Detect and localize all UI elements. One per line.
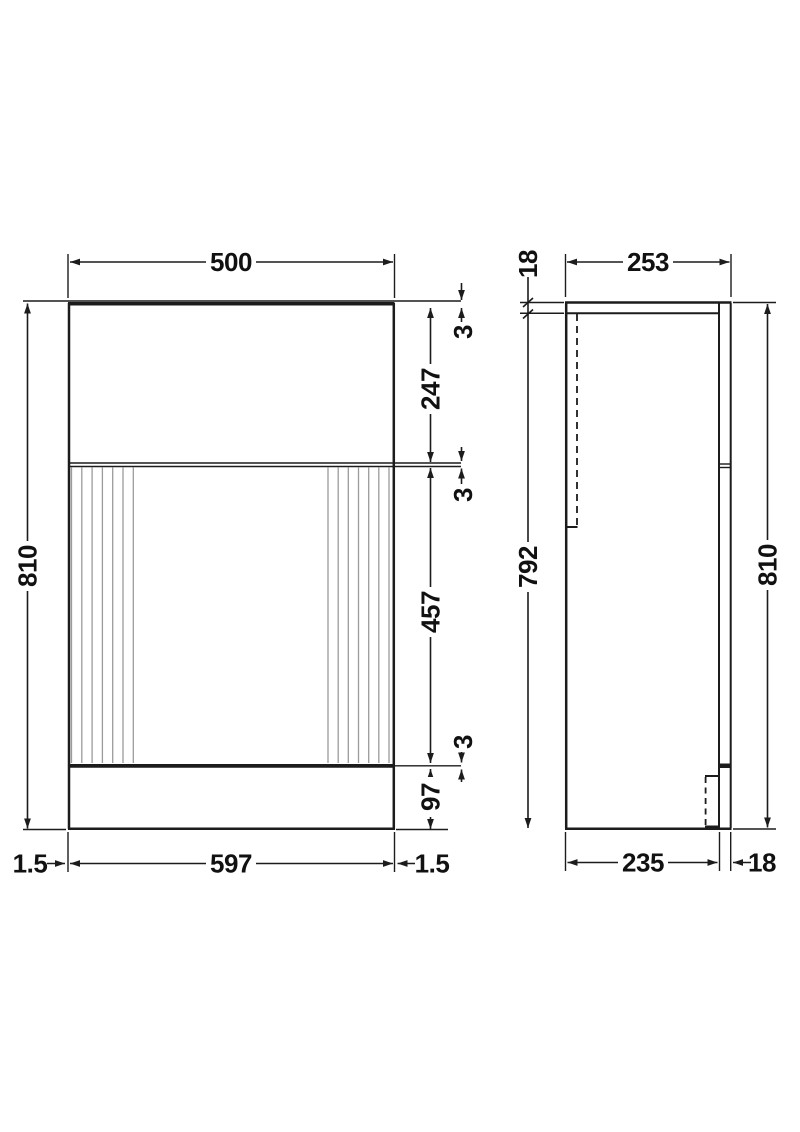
front-view: 500 810 3 247	[13, 247, 479, 879]
dim-side-carcass-height: 792	[513, 277, 543, 828]
front-flutes-left	[72, 468, 134, 764]
dim-side-height: 810	[733, 303, 783, 830]
dim-label-top-trim: 3	[448, 325, 478, 339]
dim-side-depth-bottom: 235	[566, 832, 731, 878]
dim-label-width-bottom: 597	[210, 849, 252, 879]
dim-label-carcass-height: 792	[513, 546, 543, 588]
dim-label-front-thickness: 18	[748, 848, 776, 878]
dim-front-gap-lower: 3	[448, 735, 478, 782]
dim-side-top-thickness: 18	[513, 250, 564, 318]
side-hidden-leg	[705, 776, 719, 827]
dim-label-depth-bottom: 235	[622, 848, 664, 878]
dim-label-doors: 457	[416, 591, 446, 633]
dim-side-depth-top: 253	[566, 247, 732, 297]
front-top-trim-band	[68, 302, 395, 306]
dim-front-top-trim: 3	[448, 283, 478, 339]
side-front-gap-band	[719, 764, 732, 769]
dim-label-gap-lower: 3	[448, 735, 478, 749]
dim-label-gap-upper: 3	[448, 488, 478, 502]
side-view: 253 18 792 810	[513, 247, 783, 878]
front-gap-lower-band	[68, 764, 395, 768]
side-cabinet-outline	[565, 303, 732, 829]
dim-front-upper-panel: 247	[416, 308, 446, 462]
dim-front-width-bottom: 1.5 597 1.5	[13, 832, 450, 879]
dim-label-height: 810	[13, 545, 43, 587]
dim-front-gap-upper: 3	[448, 447, 478, 502]
dim-label-depth-top: 253	[627, 247, 669, 277]
dim-label-plinth: 97	[416, 783, 446, 811]
front-flutes-right	[328, 468, 389, 764]
dim-front-width-top: 500	[68, 247, 395, 298]
dim-label-upper-panel: 247	[416, 368, 446, 410]
dim-label-top-thickness: 18	[513, 250, 543, 278]
dim-front-plinth: 97	[416, 769, 446, 829]
dim-front-height: 810	[13, 304, 43, 829]
dim-label-width-top: 500	[210, 247, 252, 277]
technical-drawing: 500 810 3 247	[0, 0, 800, 1132]
front-cabinet-outline	[23, 301, 461, 830]
dim-label-side-height: 810	[753, 544, 783, 586]
dim-label-edge-right: 1.5	[415, 849, 450, 879]
side-hidden-back-panel	[566, 314, 578, 527]
dim-label-edge-left: 1.5	[13, 849, 48, 879]
dim-side-front-thickness: 18	[733, 848, 776, 878]
dim-front-doors: 457	[416, 468, 446, 763]
